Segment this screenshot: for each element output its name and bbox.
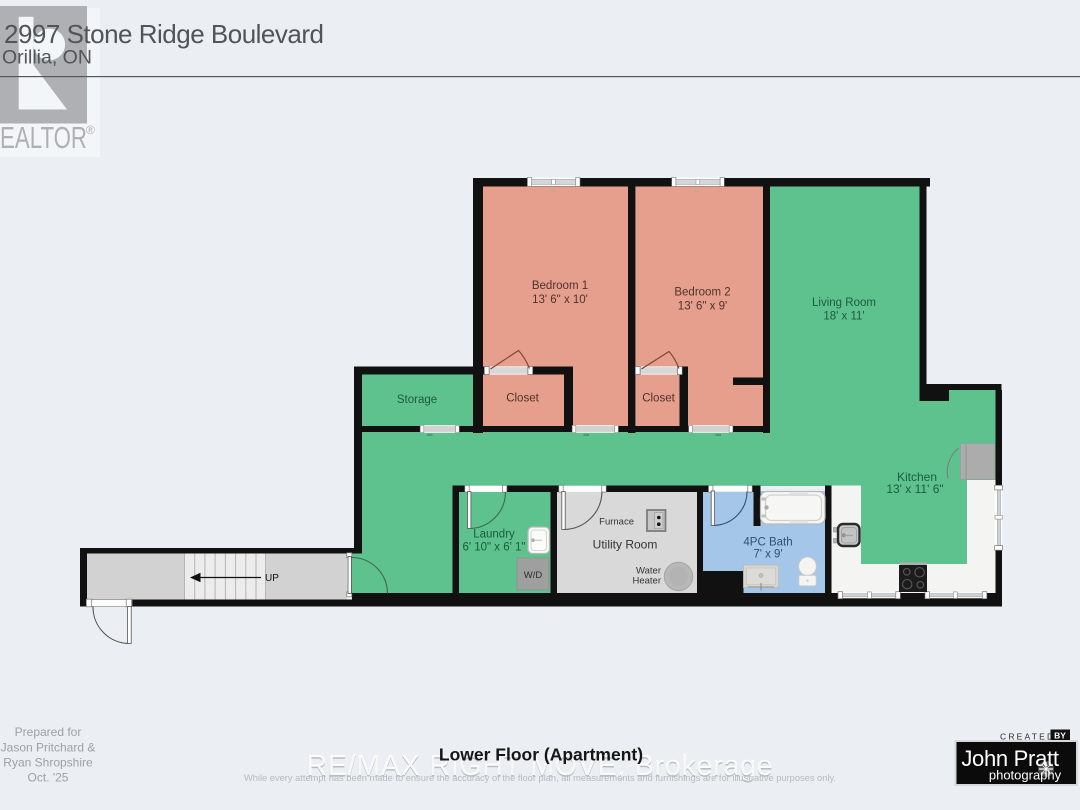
svg-text:UP: UP xyxy=(265,573,279,584)
svg-text:Orillia, ON: Orillia, ON xyxy=(2,47,92,69)
svg-text:13' 6" x 9': 13' 6" x 9' xyxy=(678,301,727,313)
svg-text:18' x 11': 18' x 11' xyxy=(823,311,864,323)
svg-text:Closet: Closet xyxy=(506,393,539,405)
svg-text:Closet: Closet xyxy=(642,393,675,405)
svg-text:Bedroom 1: Bedroom 1 xyxy=(532,280,588,292)
svg-text:Bedroom 2: Bedroom 2 xyxy=(674,287,730,299)
svg-text:Storage: Storage xyxy=(397,394,437,406)
svg-text:BY: BY xyxy=(1054,731,1066,741)
svg-text:While every attempt has been m: While every attempt has been made to ens… xyxy=(244,773,836,783)
svg-text:W/D: W/D xyxy=(524,570,543,581)
svg-text:2997 Stone Ridge Boulevard: 2997 Stone Ridge Boulevard xyxy=(4,19,323,49)
svg-text:®: ® xyxy=(86,123,95,137)
svg-text:Laundry: Laundry xyxy=(473,529,515,541)
svg-text:7' x 9': 7' x 9' xyxy=(753,549,782,561)
svg-text:Furnace: Furnace xyxy=(599,517,634,528)
svg-text:Jason Pritchard &: Jason Pritchard & xyxy=(1,741,96,755)
svg-text:REALTOR: REALTOR xyxy=(0,120,87,155)
svg-text:13' 6" x 10': 13' 6" x 10' xyxy=(532,294,588,306)
svg-text:Utility Room: Utility Room xyxy=(593,538,658,552)
svg-text:Lower Floor (Apartment): Lower Floor (Apartment) xyxy=(439,745,643,765)
svg-text:Living Room: Living Room xyxy=(812,297,876,309)
svg-text:13' x 11' 6": 13' x 11' 6" xyxy=(886,482,943,496)
svg-text:4PC Bath: 4PC Bath xyxy=(743,537,792,549)
svg-text:Oct. '25: Oct. '25 xyxy=(28,771,69,785)
svg-text:Prepared for: Prepared for xyxy=(15,725,82,739)
svg-text:6' 10" x 6' 1": 6' 10" x 6' 1" xyxy=(462,542,525,554)
svg-text:Ryan Shropshire: Ryan Shropshire xyxy=(3,756,93,770)
svg-text:Heater: Heater xyxy=(632,576,661,587)
